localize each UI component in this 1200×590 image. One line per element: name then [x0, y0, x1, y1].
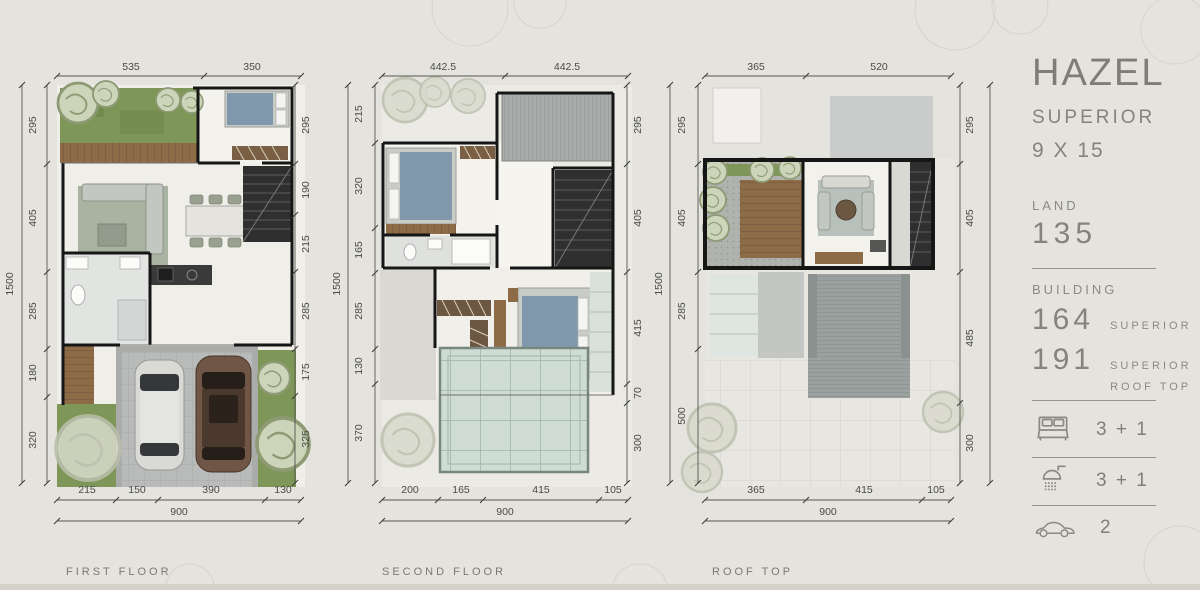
shower-icon — [1032, 463, 1074, 499]
tree-icon — [451, 79, 485, 113]
dim-label: 295 — [27, 116, 39, 134]
lounge-set — [818, 176, 874, 236]
dim-label: 405 — [27, 209, 39, 227]
floor-plans: 535 350 295 405 285 180 320 1500 295 190… — [0, 0, 1200, 590]
dim-label: 415 — [532, 484, 550, 496]
dim-label: 442.5 — [554, 61, 580, 73]
side-deck — [64, 346, 94, 404]
cabinet — [870, 240, 886, 252]
divider — [1032, 505, 1156, 506]
toilet — [71, 285, 85, 305]
terrace-deck — [740, 180, 803, 258]
dim-label: 295 — [300, 116, 312, 134]
car-icon — [1032, 515, 1078, 541]
bathrooms-row: 3 + 1 — [1032, 463, 1149, 499]
tree-icon — [258, 362, 290, 394]
title-size: 9 X 15 — [1032, 139, 1192, 163]
dim-label: 150 — [128, 484, 146, 496]
dim-label: 105 — [604, 484, 622, 496]
dim-label: 365 — [747, 61, 765, 73]
building-row: 191 SUPERIOR ROOF TOP — [1032, 343, 1192, 398]
tree-icon — [923, 392, 963, 432]
dim-label: 535 — [122, 61, 140, 73]
carport-count: 2 — [1100, 517, 1113, 539]
roof-band — [830, 96, 933, 158]
title-variant: SUPERIOR — [1032, 107, 1192, 129]
building-tag: SUPERIOR — [1110, 320, 1191, 332]
dim-label: 370 — [353, 424, 365, 442]
dim-label: 300 — [632, 434, 644, 452]
page-title: HAZEL — [1032, 52, 1192, 95]
dim-label: 165 — [452, 484, 470, 496]
grass-patch — [120, 110, 164, 134]
land-label: LAND — [1032, 198, 1192, 213]
dim-label: 405 — [632, 209, 644, 227]
roof-top-plan — [682, 85, 963, 492]
building-tag: SUPERIOR — [1110, 356, 1191, 377]
dim-label: 295 — [632, 116, 644, 134]
outside-area — [380, 270, 436, 400]
bathroom — [64, 254, 149, 344]
sink — [120, 257, 140, 269]
second-floor-plan — [380, 77, 632, 487]
dim-label: 320 — [27, 431, 39, 449]
tree-icon — [420, 77, 450, 107]
dim-label: 180 — [27, 364, 39, 382]
tree-icon — [181, 91, 203, 113]
car-silver — [135, 360, 184, 470]
sink — [428, 239, 442, 249]
stairs — [243, 166, 292, 242]
dim-label: 390 — [202, 484, 220, 496]
dim-label: 520 — [870, 61, 888, 73]
bathtub — [452, 239, 490, 264]
hall-floor — [497, 143, 553, 268]
dim-label: 285 — [676, 302, 688, 320]
carport-row: 2 — [1032, 515, 1113, 541]
dim-label: 485 — [964, 329, 976, 347]
dim-label: 105 — [927, 484, 945, 496]
dim-label: 295 — [964, 116, 976, 134]
dim-label: 350 — [243, 61, 261, 73]
side-table — [508, 288, 518, 302]
tree-icon — [93, 81, 119, 107]
bedrooms-count: 3 + 1 — [1096, 419, 1149, 441]
dim-label: 165 — [353, 241, 365, 259]
tree-icon — [58, 83, 98, 123]
dim-label: 415 — [632, 319, 644, 337]
dim-label: 295 — [676, 116, 688, 134]
building-area: 191 — [1032, 343, 1094, 377]
bed — [386, 148, 456, 224]
roof-top-label: ROOF TOP — [712, 566, 793, 578]
dim-label: 500 — [676, 407, 688, 425]
dim-label: 405 — [676, 209, 688, 227]
car-brown — [196, 356, 251, 472]
dim-label: 365 — [747, 484, 765, 496]
kitchen-counter — [150, 265, 212, 285]
first-floor-label: FIRST FLOOR — [66, 566, 172, 578]
building-row: 164 SUPERIOR — [1032, 303, 1192, 337]
tree-icon — [688, 404, 736, 452]
pouf — [836, 200, 856, 220]
dim-label: 320 — [353, 177, 365, 195]
tree-icon — [156, 88, 180, 112]
dim-label: 285 — [353, 302, 365, 320]
dim-total-label: 1500 — [4, 272, 16, 296]
dim-label: 215 — [78, 484, 96, 496]
wardrobe — [460, 146, 495, 159]
skylight — [440, 348, 588, 472]
dim-label: 285 — [300, 302, 312, 320]
dim-total-label: 900 — [496, 506, 514, 518]
dim-label: 442.5 — [430, 61, 456, 73]
building-block: BUILDING 164 SUPERIOR 191 SUPERIOR ROOF … — [1032, 282, 1192, 398]
bathrooms-count: 3 + 1 — [1096, 470, 1149, 492]
dim-label: 325 — [300, 430, 312, 448]
upper-panel — [713, 88, 761, 143]
tree-icon — [682, 452, 722, 492]
building-area: 164 — [1032, 303, 1094, 337]
first-floor-plan — [56, 81, 309, 487]
tree-icon — [56, 416, 120, 480]
dim-label: 130 — [274, 484, 292, 496]
dim-label: 215 — [300, 235, 312, 253]
dim-total-label: 1500 — [653, 272, 665, 296]
main-roof-lower — [808, 358, 910, 398]
bathroom — [386, 236, 494, 267]
vanity — [66, 257, 88, 269]
dim-total-label: 900 — [170, 506, 188, 518]
dim-label: 70 — [632, 387, 644, 399]
divider — [1032, 457, 1156, 458]
dim-total-label: 900 — [819, 506, 837, 518]
dim-label: 415 — [855, 484, 873, 496]
balcony-strip — [590, 272, 613, 392]
dim-label: 405 — [964, 209, 976, 227]
toilet — [404, 244, 416, 260]
bedrooms-row: 3 + 1 — [1032, 412, 1149, 448]
bed-icon — [1032, 412, 1074, 448]
dim-label: 130 — [353, 357, 365, 375]
deck — [60, 143, 198, 163]
wardrobe — [232, 146, 288, 160]
tree-icon — [383, 78, 427, 122]
dining-set — [186, 195, 244, 247]
title-block: HAZEL SUPERIOR 9 X 15 — [1032, 52, 1192, 163]
building-label: BUILDING — [1032, 282, 1192, 297]
dim-label: 300 — [964, 434, 976, 452]
stairs — [890, 162, 933, 268]
building-tag: ROOF TOP — [1110, 377, 1191, 398]
tree-icon — [382, 414, 434, 466]
coffee-table — [98, 224, 126, 246]
dim-label: 215 — [353, 105, 365, 123]
stairs — [555, 170, 613, 268]
second-floor-label: SECOND FLOOR — [382, 566, 506, 578]
dim-label: 200 — [401, 484, 419, 496]
land-block: LAND 135 — [1032, 198, 1192, 251]
divider — [1032, 268, 1156, 269]
roof-strip — [502, 93, 613, 161]
divider — [1032, 400, 1156, 401]
dim-total-label: 1500 — [331, 272, 343, 296]
bed — [225, 91, 289, 127]
shower-area — [118, 300, 146, 340]
console-table — [815, 252, 863, 264]
dim-label: 175 — [300, 363, 312, 381]
wood-floor-strip — [386, 224, 456, 234]
land-value: 135 — [1032, 217, 1192, 251]
dim-label: 190 — [300, 181, 312, 199]
dim-label: 285 — [27, 302, 39, 320]
